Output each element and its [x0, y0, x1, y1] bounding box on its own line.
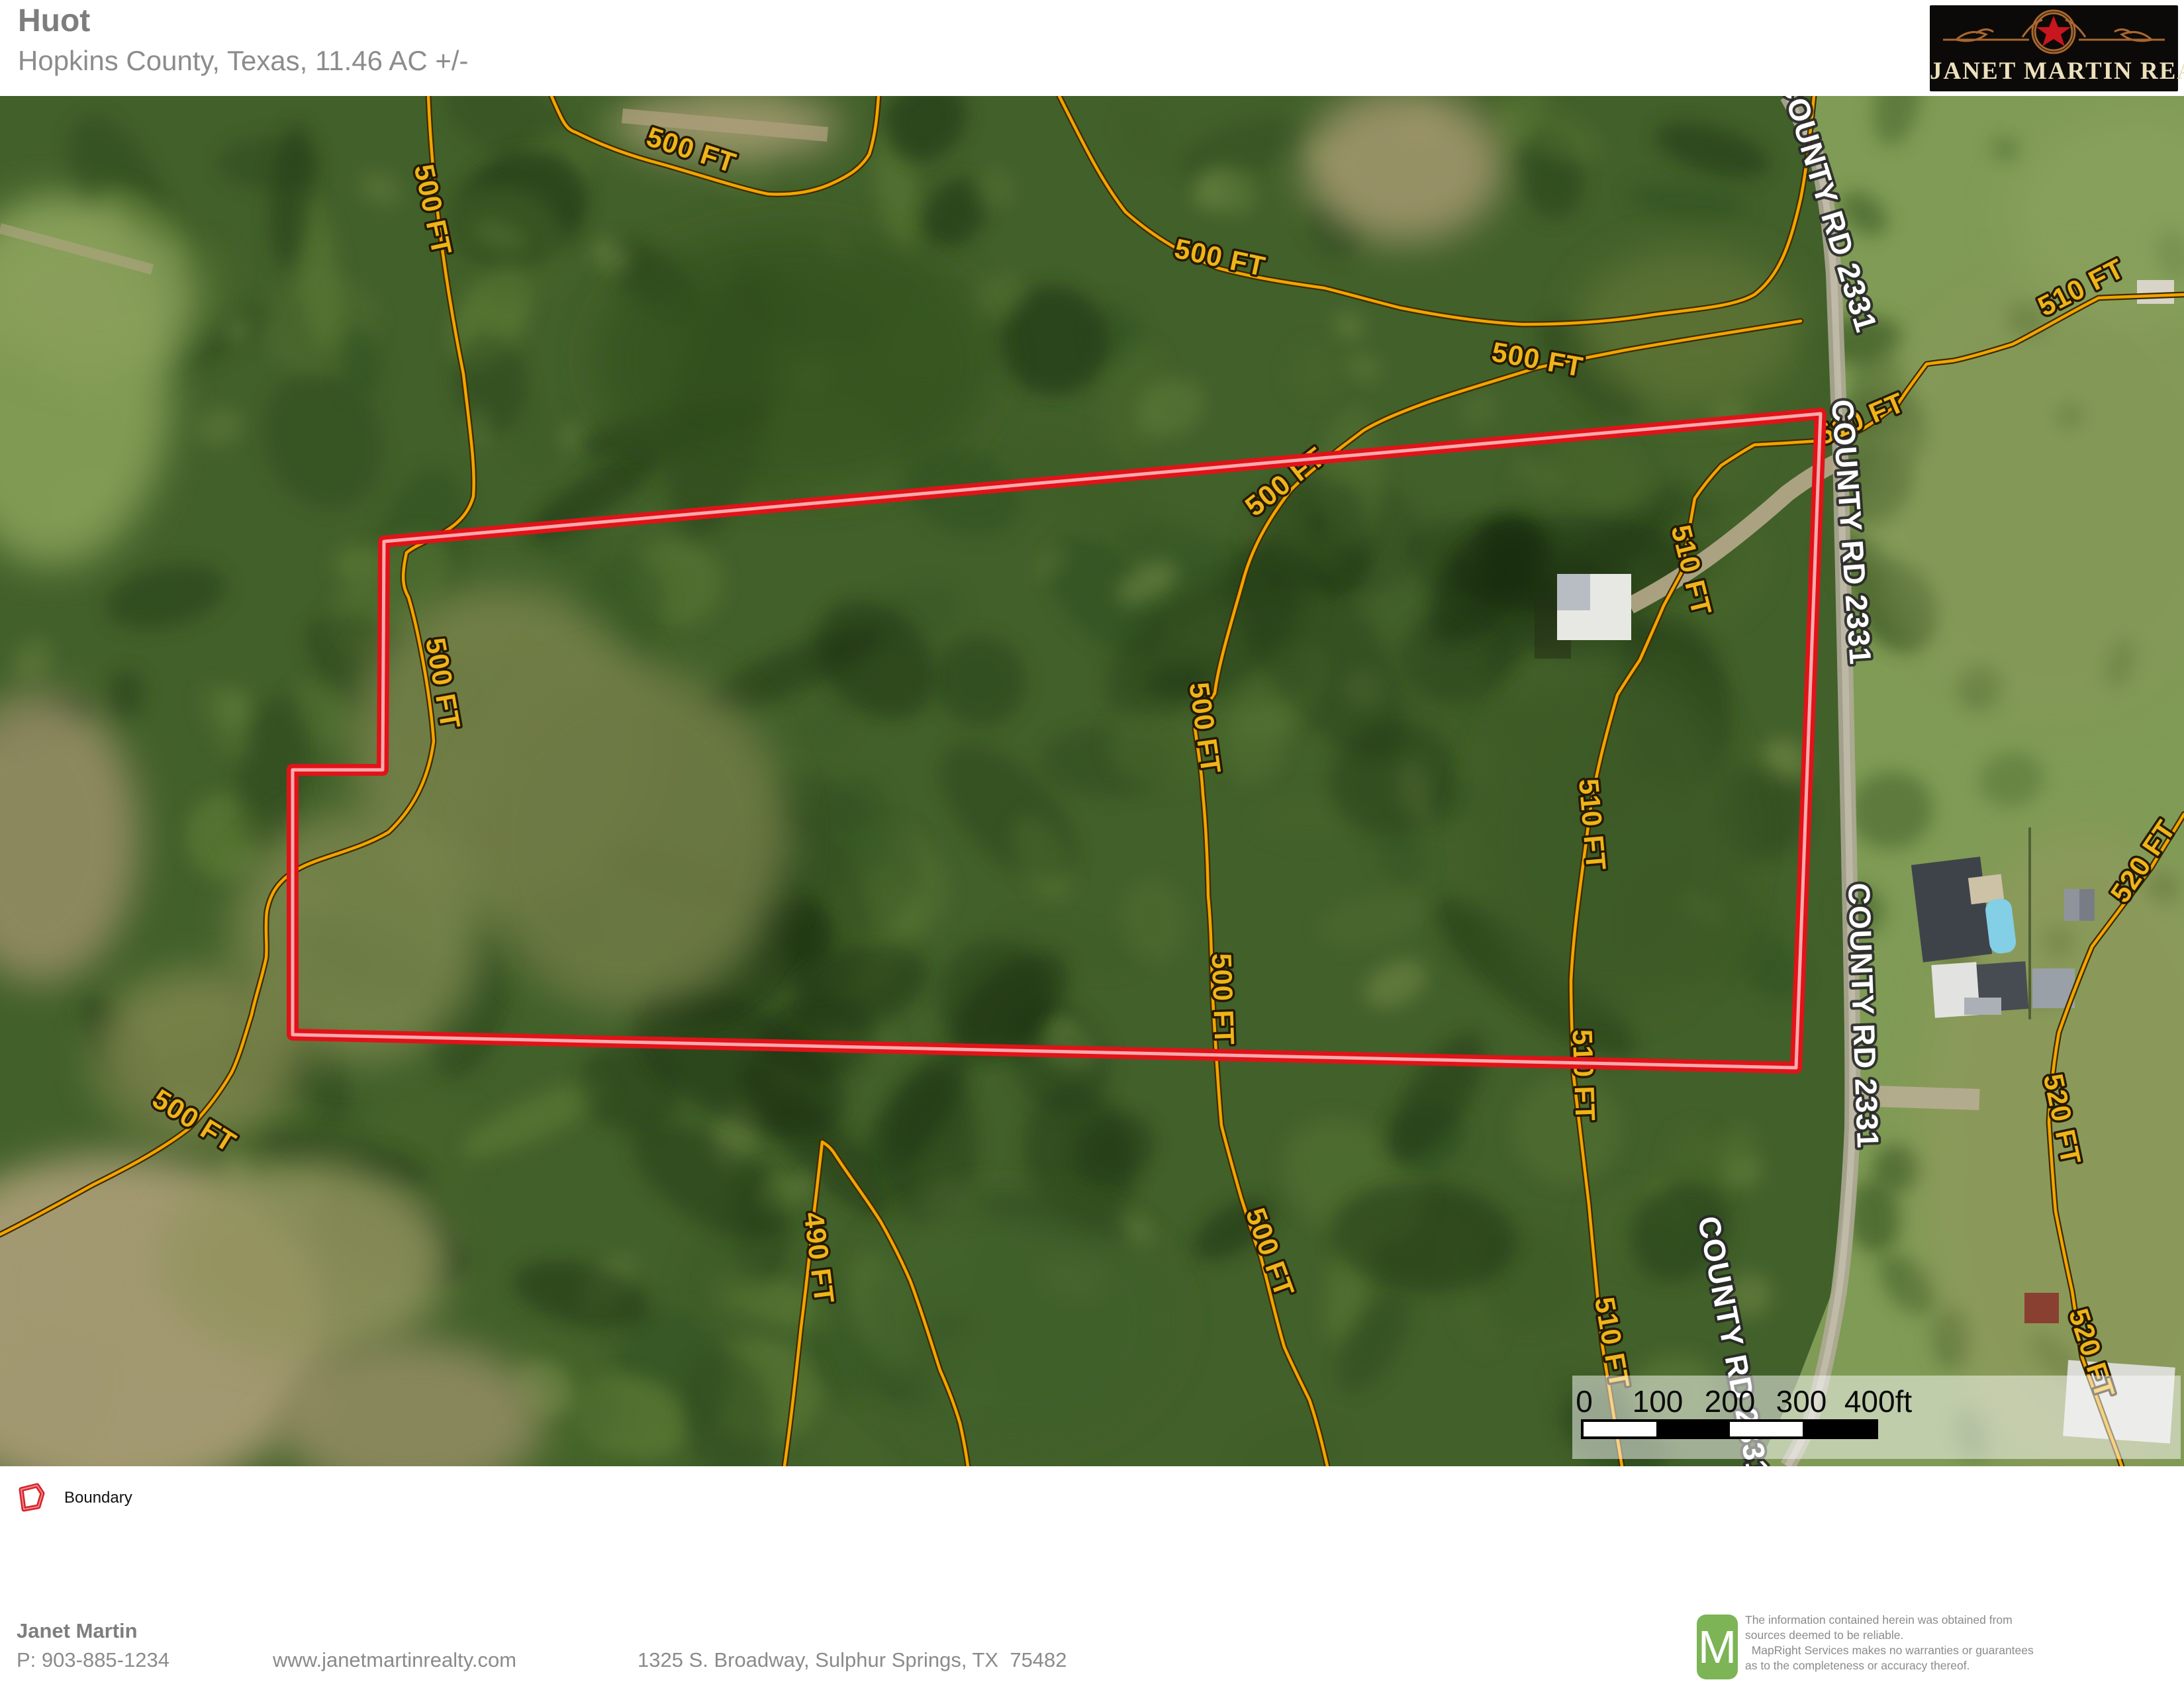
scale-tick: 100: [1633, 1383, 1684, 1419]
disclaimer: The information contained herein was obt…: [1745, 1613, 2036, 1673]
page-title: Huot: [18, 3, 90, 39]
scale-tick: 200: [1705, 1383, 1756, 1419]
agent-name: Janet Martin: [17, 1619, 138, 1643]
scale-tick: 300: [1776, 1383, 1827, 1419]
page-subtitle: Hopkins County, Texas, 11.46 AC +/-: [18, 45, 469, 77]
disclaimer-line: MapRight Services makes no warranties or…: [1745, 1643, 2036, 1658]
contour-label: 500 FT: [1206, 953, 1241, 1046]
agent-website: www.janetmartinrealty.com: [273, 1648, 516, 1672]
disclaimer-line: sources deemed to be reliable.: [1745, 1628, 2036, 1643]
scale-bar: 0 100 200 300 400ft: [1572, 1376, 2181, 1459]
mapright-logo-letter: M: [1698, 1620, 1736, 1673]
scale-tick: 0: [1576, 1383, 1593, 1419]
scale-tick: 400ft: [1844, 1383, 1912, 1419]
disclaimer-line: as to the completeness or accuracy there…: [1745, 1658, 2036, 1673]
disclaimer-line: The information contained herein was obt…: [1745, 1613, 2036, 1628]
logo-text: JANET MARTIN REALTY: [1930, 57, 2178, 85]
mapright-logo: M: [1697, 1615, 1738, 1679]
map-canvas: 500 FT 500 FT 500 FT 500 FT 500 FT 500 F…: [0, 96, 2184, 1466]
contour-label: 510 FT: [1567, 1029, 1601, 1122]
scale-bar-segments: [1581, 1419, 1878, 1439]
agent-phone: P: 903-885-1234: [17, 1648, 169, 1672]
janet-martin-realty-logo: JANET MARTIN REALTY: [1930, 5, 2178, 91]
legend-item-label: Boundary: [64, 1489, 132, 1507]
agent-address: 1325 S. Broadway, Sulphur Springs, TX 75…: [638, 1648, 1067, 1672]
boundary-polygon-icon: [17, 1483, 46, 1513]
legend: Boundary: [17, 1483, 132, 1513]
